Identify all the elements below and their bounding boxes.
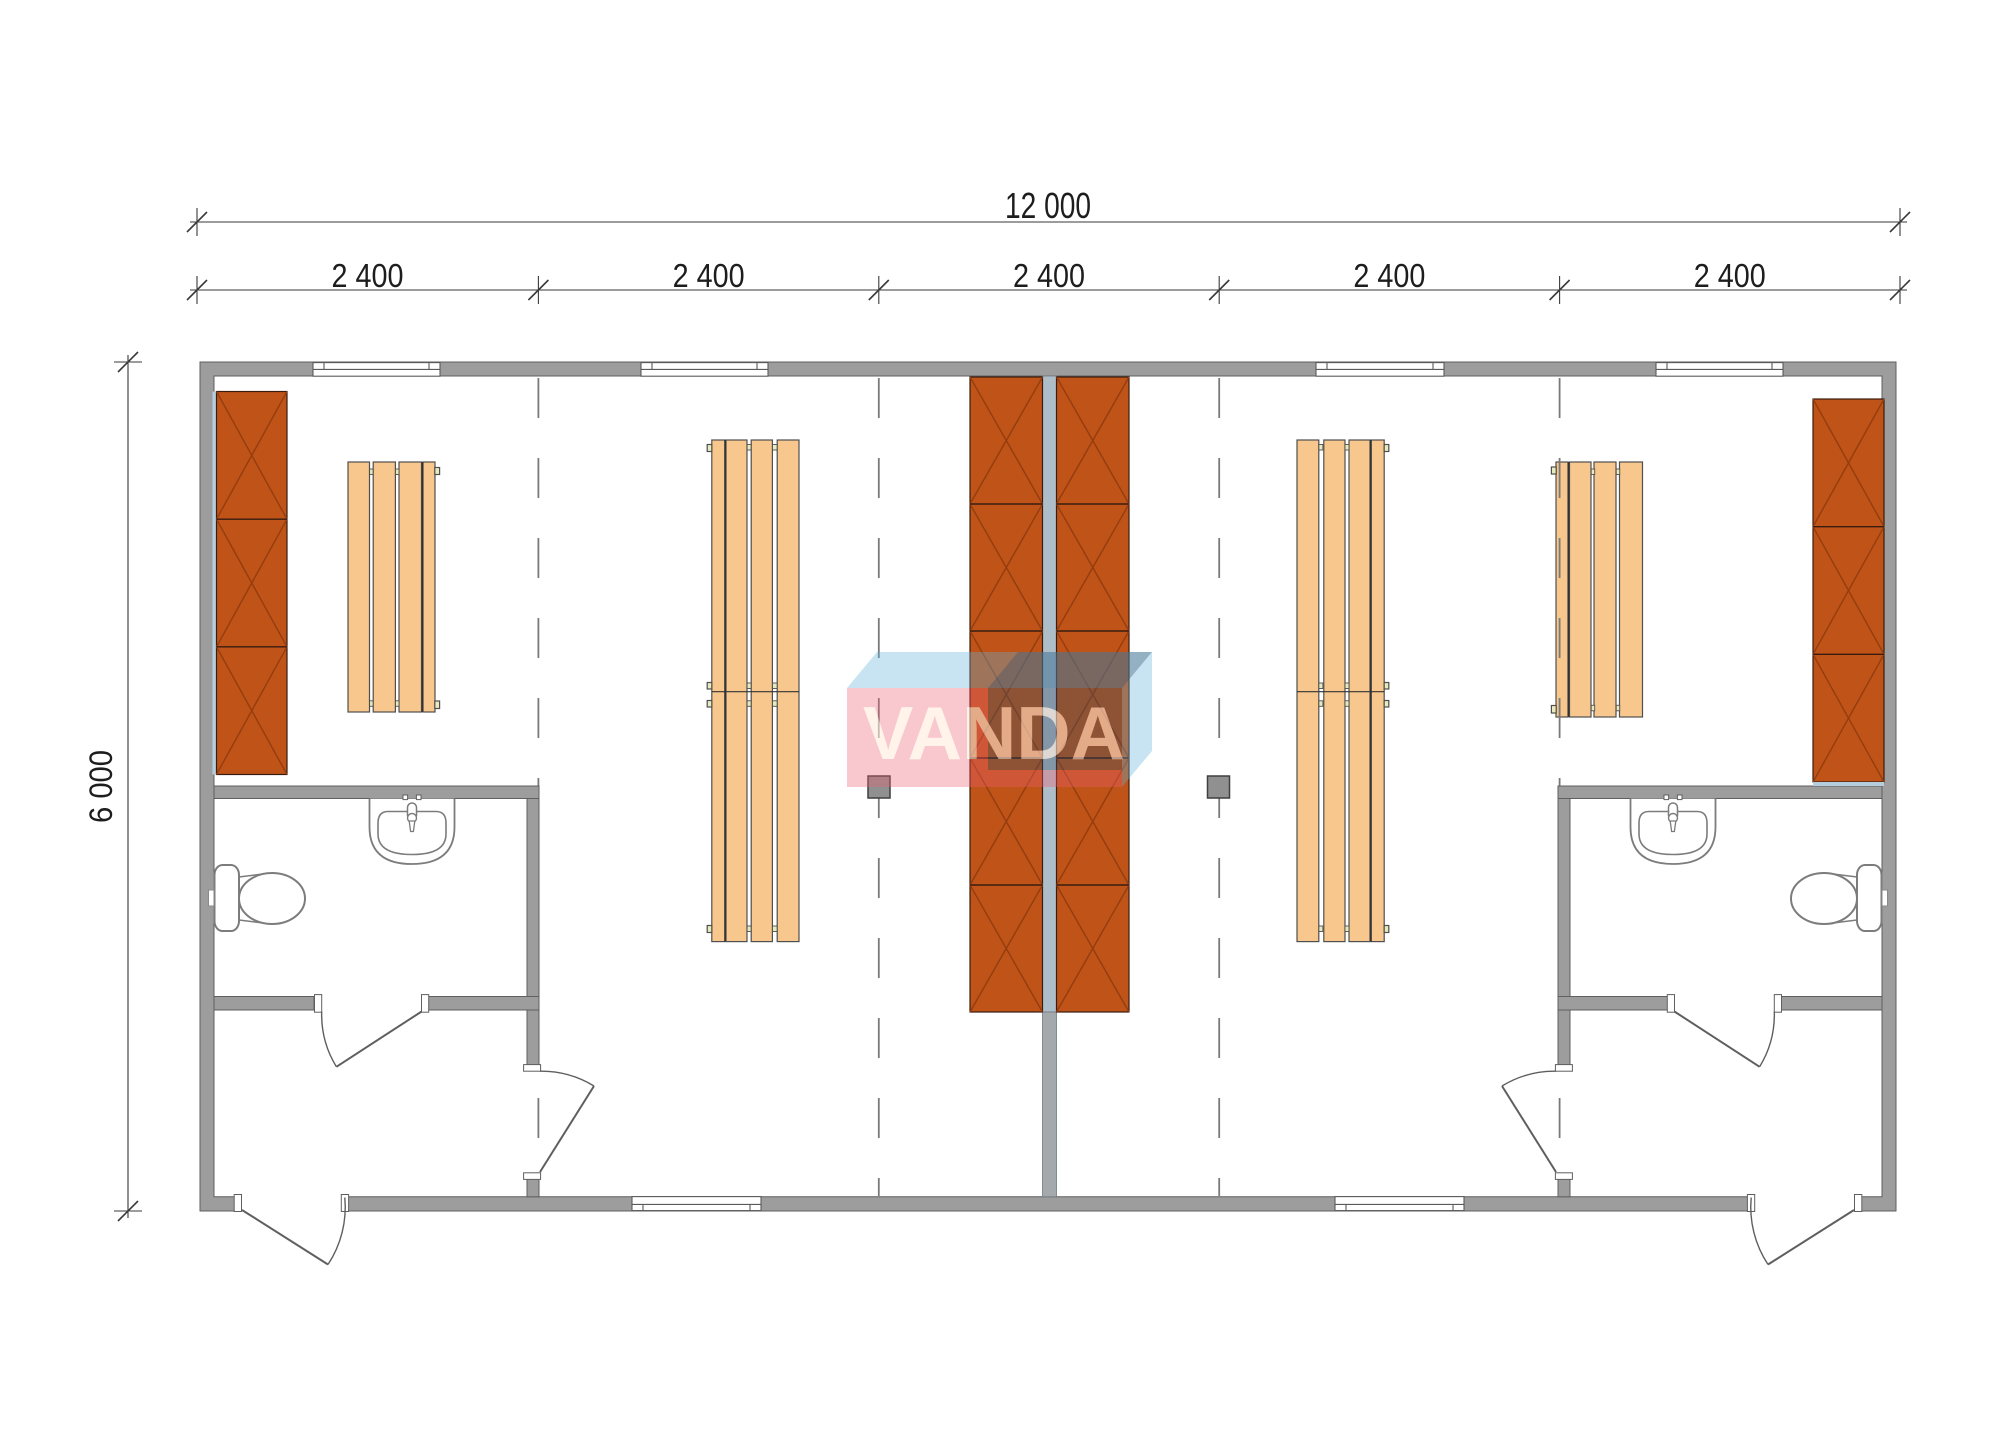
svg-text:2 400: 2 400 xyxy=(1694,257,1766,294)
svg-text:6 000: 6 000 xyxy=(83,750,119,823)
svg-text:2 400: 2 400 xyxy=(332,257,404,294)
svg-text:12 000: 12 000 xyxy=(1005,185,1091,226)
svg-text:2 400: 2 400 xyxy=(1353,257,1425,294)
svg-text:VANDA: VANDA xyxy=(863,691,1125,775)
svg-text:2 400: 2 400 xyxy=(673,257,745,294)
svg-text:2 400: 2 400 xyxy=(1013,257,1085,294)
